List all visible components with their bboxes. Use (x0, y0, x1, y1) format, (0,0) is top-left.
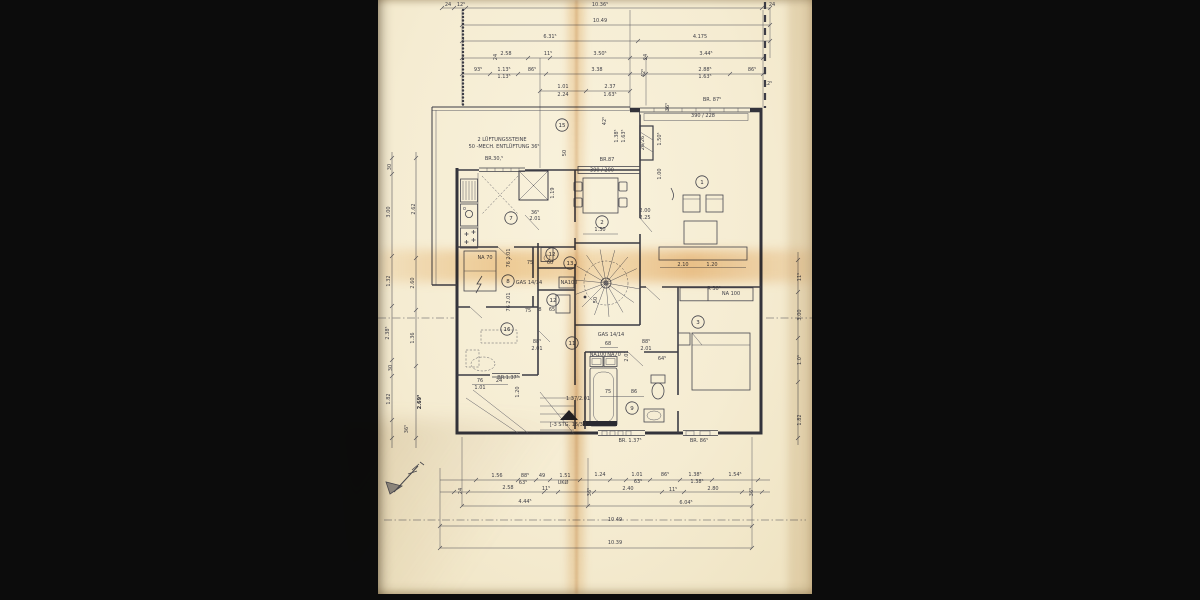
entry-steps (466, 390, 617, 434)
dim-label: 2.25 (639, 215, 650, 221)
dim-label: 76 (477, 378, 483, 384)
dim-label: 65 (549, 307, 555, 313)
dim-label: 2.37 (604, 84, 615, 90)
dim-label: 390 / 228 (691, 113, 715, 119)
floor-plan-drawing: 2412⁵10.36⁵2410.496.31⁵4.1752.5811⁵3.50⁵… (378, 0, 812, 594)
dim-label: 76 2.01 (506, 292, 512, 311)
dim-label: 93⁵ (474, 67, 482, 73)
dim-label: [-3 STG. 16/30 (550, 422, 586, 428)
dim-label: 2.01 (529, 216, 540, 222)
svg-text:13: 13 (567, 261, 574, 267)
dim-label: NA 100 (722, 291, 740, 297)
dim-label: GAS 14/14 (598, 332, 624, 338)
dim-label: 60 (547, 260, 553, 266)
sink-counter (461, 204, 478, 226)
dim-label: 2.40 (622, 486, 633, 492)
dim-label: 2.60 (410, 277, 416, 288)
scanner-background: 2412⁵10.36⁵2410.496.31⁵4.1752.5811⁵3.50⁵… (0, 0, 1200, 600)
dim-label: 1.01 (631, 472, 642, 478)
dim-label: BR. 86⁵ (690, 438, 708, 444)
sideboard (659, 247, 747, 260)
bedroom-window (683, 429, 718, 437)
dim-label: NA100 (561, 280, 578, 286)
nightstand (678, 333, 690, 345)
tick-marks (390, 6, 800, 550)
dim-label: 86⁵ (748, 67, 756, 73)
bath-window (598, 429, 645, 437)
room-number-badge: 7 (505, 212, 517, 224)
svg-text:12: 12 (549, 252, 556, 258)
dim-label: 49 (539, 473, 545, 479)
room-number-badge: 3 (692, 316, 704, 328)
room-number-badge: 16 (501, 323, 513, 335)
dim-label: 36⁵ (749, 488, 755, 496)
dim-label: NA100 (590, 352, 607, 358)
dim-label: 50 (562, 150, 568, 156)
svg-text:8: 8 (506, 279, 510, 285)
dim-label: 50 (593, 297, 599, 303)
dim-label: 12⁵ (457, 2, 465, 8)
dim-label: 1.38⁵ (690, 479, 703, 485)
dim-label: 88⁵ (521, 473, 529, 479)
door-swing (628, 352, 643, 366)
dim-label: 3.00 (797, 309, 803, 320)
spiral-staircase (575, 250, 640, 317)
room-number-badge: 1 (696, 176, 708, 188)
dim-label: 2.01 (531, 346, 542, 352)
dim-label: 64⁵ (658, 356, 666, 362)
dim-label: 30 (388, 365, 394, 371)
dim-label: 1.63⁵ (621, 129, 627, 142)
dim-label: 1.20 (706, 262, 717, 268)
svg-text:1: 1 (700, 180, 704, 186)
svg-text:9: 9 (630, 406, 634, 412)
dim-label: 2.62 (411, 203, 417, 214)
dim-label: 36⁵ (665, 103, 671, 111)
dim-label: 2.58 (500, 51, 511, 57)
dining-table (583, 178, 618, 213)
dim-label: 24 (445, 2, 451, 8)
shaft-box (519, 171, 548, 200)
dim-label: 2.58 (502, 485, 513, 491)
dim-label: 24 (643, 54, 649, 60)
dim-label: 1.56 (491, 473, 502, 479)
dim-label: 4.175 (693, 34, 707, 40)
dim-label: 86 (631, 389, 637, 395)
dim-label: 1.13⁵ (497, 67, 510, 73)
washbasin (644, 409, 664, 422)
svg-text:3: 3 (696, 320, 700, 326)
dim-label: 1.20 (515, 386, 521, 397)
dim-label: 10.49 (593, 18, 607, 24)
room-number-badge: 11 (566, 337, 578, 349)
dim-label: 75 (525, 308, 531, 314)
toilet (651, 375, 665, 399)
dim-label: 42⁵ (641, 69, 647, 77)
dim-label: 1.51 (559, 473, 570, 479)
dim-label: 8 (538, 307, 541, 313)
dim-label: 1.82 (386, 393, 392, 404)
chair (619, 198, 627, 207)
dim-label: 6.04⁵ (679, 500, 692, 506)
curtain-squiggle (671, 188, 674, 200)
svg-text:2: 2 (600, 220, 604, 226)
dim-label: 1.37/2.01 (566, 396, 590, 402)
dim-label: 2.38⁵ (385, 326, 391, 339)
dim-label: 11⁵ (544, 51, 552, 57)
dim-label: 36⁵ (404, 425, 410, 433)
room-number-badge: 15 (556, 119, 568, 131)
north-arrow-doodle (386, 462, 424, 494)
dim-label: GAS 14/14 (516, 280, 542, 286)
electrical-bolt (476, 276, 482, 293)
svg-text:11: 11 (569, 341, 576, 347)
dim-label: 2.10 (677, 262, 688, 268)
dim-label: 86⁵ (528, 67, 536, 73)
room-number-badge: 8 (502, 275, 514, 287)
dim-label: 10.36⁵ (592, 2, 608, 8)
armchair (683, 195, 700, 212)
dim-label: 2.88⁵ (698, 67, 711, 73)
dim-label: 24 (493, 54, 499, 60)
dim-label: 11⁵ (542, 486, 550, 492)
dim-label: 1.54⁵ (728, 472, 741, 478)
dim-label: 30 (387, 164, 393, 170)
dim-label: 88⁵ (533, 339, 541, 345)
dim-label: 50 -MECH. ENTLÜFTUNG 36⁵ (469, 143, 540, 150)
dim-label: 3.50⁵ (593, 51, 606, 57)
armchair (706, 195, 723, 212)
dim-label: 11⁵ (669, 487, 677, 493)
dim-label: 1.00 (657, 168, 663, 179)
bathroom-fixtures (590, 352, 665, 426)
cooktop (461, 228, 478, 248)
coffee-table (684, 221, 717, 244)
dim-label: 63⁵ (634, 479, 642, 485)
annotations-layer: 2412⁵10.36⁵2410.496.31⁵4.1752.5811⁵3.50⁵… (385, 2, 803, 546)
dimension-lines (378, 8, 812, 548)
dim-label: 2.80 (707, 486, 718, 492)
dim-label: 10.49 (608, 517, 622, 523)
svg-text:15: 15 (559, 123, 566, 129)
dim-label: 1.01 (474, 385, 485, 391)
dim-label: 3.38 (591, 67, 602, 73)
dim-label: 1.19 (550, 187, 556, 198)
dim-label: 24 (496, 378, 502, 384)
living-room-furniture (659, 188, 747, 268)
dim-label: 24 (458, 488, 464, 494)
dim-label: 2.01 (640, 346, 651, 352)
dim-label: 4.44⁵ (518, 499, 531, 505)
svg-text:12: 12 (550, 298, 557, 304)
dim-label: 76 2.01 (506, 248, 512, 267)
entry-threshold (583, 421, 617, 426)
dim-label: 1.63⁵ (698, 74, 711, 80)
kitchen-window (479, 166, 525, 174)
dim-label: 36⁵ (587, 488, 593, 496)
room-number-badge: 12 (547, 294, 559, 306)
dim-label: BR. 87⁵ (703, 97, 721, 103)
dim-label: 1.50⁵ (657, 132, 663, 145)
dim-label: 1.01 (557, 84, 568, 90)
svg-text:16: 16 (504, 327, 511, 333)
dim-label: 12⁵ (764, 81, 772, 87)
dashed-furniture (466, 330, 517, 371)
dim-label: NA 70 (477, 255, 492, 261)
dim-label: 1.13⁵ (497, 74, 510, 80)
bed (692, 333, 750, 390)
dim-label: 2.01 (624, 350, 630, 361)
dim-label: 68 (605, 341, 611, 347)
dim-label: 2 LÜFTUNGSSTEINE (477, 136, 526, 143)
dim-label: 2.24 (557, 92, 568, 98)
dim-label: R 30⁵ (707, 286, 720, 292)
dim-label: 2.00 (639, 208, 650, 214)
dim-label: 11⁵ (797, 273, 803, 281)
dim-label: 86⁵ (661, 472, 669, 478)
dim-label: 3.00 (386, 206, 392, 217)
dim-label: 1.38⁵ (614, 129, 620, 142)
dim-label: 1.82 (797, 414, 803, 425)
room-number-badge: 9 (626, 402, 638, 414)
dim-label: 3.44⁵ (699, 51, 712, 57)
dim-label: 1.0⁵ (797, 355, 803, 365)
dim-label: BR.87 (600, 157, 615, 163)
dim-label: 63⁵ (519, 480, 527, 486)
sink (465, 210, 472, 217)
dim-label: NA70 (607, 352, 621, 358)
dim-label: 10.39 (608, 540, 622, 546)
dim-label: BR. 1.37⁵ (618, 438, 641, 444)
dim-label: 26/26 (640, 136, 646, 150)
dim-label: 75 (527, 260, 533, 266)
dim-label: 24 (769, 2, 775, 8)
dim-label: 1.36 (410, 332, 416, 343)
dim-label: 1.63⁵ (603, 92, 616, 98)
room-number-badge: 12 (546, 248, 558, 260)
dim-label: 42⁵ (602, 117, 608, 125)
dim-label: 6.31⁵ (543, 34, 556, 40)
dim-label: 1.32 (386, 275, 392, 286)
chair (619, 182, 627, 191)
dim-label: 2.69⁵ (417, 395, 423, 410)
dim-label: 75 (605, 389, 611, 395)
dim-label: 1.38⁵ (688, 472, 701, 478)
dim-label: 390 / 200 (590, 168, 614, 174)
dim-label: UKØ (558, 479, 569, 486)
dim-label: 1.24 (594, 472, 605, 478)
dim-label: BR.30,⁵ (485, 156, 503, 162)
bedroom-furniture (678, 333, 750, 390)
svg-text:7: 7 (509, 216, 513, 222)
floor-plan-paper: 2412⁵10.36⁵2410.496.31⁵4.1752.5811⁵3.50⁵… (378, 0, 812, 594)
dim-label: 88⁵ (642, 339, 650, 345)
